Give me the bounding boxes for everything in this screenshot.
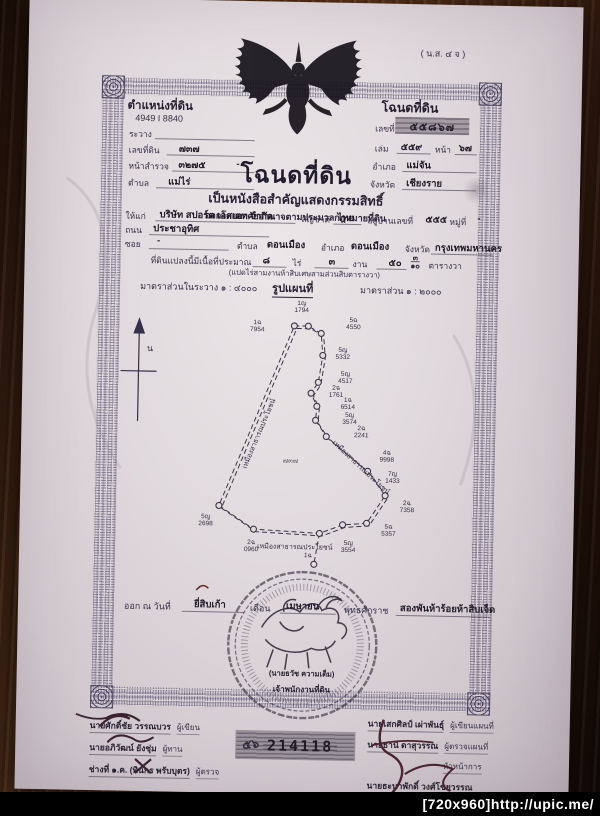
signatory-name bbox=[367, 767, 437, 768]
stamp-prefix: ๕๖ bbox=[242, 734, 260, 754]
survey-point-label: 5ญ3554 bbox=[341, 540, 356, 554]
garuda-emblem-icon bbox=[217, 28, 379, 137]
survey-point-label: 5ฉ5357 bbox=[381, 524, 396, 538]
owner-district-label: อำเภอ bbox=[321, 240, 345, 254]
road-label: ถนน bbox=[125, 223, 142, 237]
stamp-number: 214118 bbox=[267, 736, 334, 755]
signatory-name: นายเสกศิลป์ เผ่าพันธุ์ bbox=[368, 716, 445, 732]
photo-bottom-bar: [720x960]http://upic.me/ bbox=[0, 792, 600, 816]
signatory-role: หัวหน้าการ bbox=[443, 760, 482, 775]
seal-officer-name: (นายธวัช ความเต็ม) bbox=[269, 667, 335, 678]
photo-of-land-deed: { "watermark": "[720x960]http://upic.me/… bbox=[0, 0, 600, 816]
map-labels-layer: 1ญ17941ฉ79545ฉ45505ญ53325ญ45172ฉ17611ฉ65… bbox=[75, 292, 504, 584]
issue-prefix: ออก ณ วันที่ bbox=[124, 599, 171, 614]
frame-corner-ornament bbox=[90, 685, 113, 708]
survey-point-label: 1ญ1794 bbox=[294, 300, 309, 314]
owner-district-value: ดอนเมือง bbox=[351, 239, 390, 255]
watermark-text: [720x960]http://upic.me/ bbox=[423, 796, 595, 812]
serial-stamp: ๕๖ 214118 bbox=[236, 731, 354, 760]
signature-row: นายธานี ดาสุวรรณผู้ตรวจแผนที่ bbox=[367, 737, 493, 754]
survey-map: น 1ญ17941ฉ79545ฉ45505ญ53325ญ45172ฉ17611ฉ… bbox=[75, 292, 504, 584]
survey-point-label: 2ฉ2241 bbox=[354, 425, 369, 439]
survey-point-label: 1ฉ7954 bbox=[250, 319, 265, 333]
nationality-label: สัญชาติ bbox=[301, 212, 330, 227]
signatory-role: ผู้ทาน bbox=[162, 742, 182, 756]
signatory-role: ผู้ตรวจแผนที่ bbox=[444, 740, 488, 755]
owner-subdistrict-value: ดอนเมือง bbox=[267, 237, 306, 253]
boundary-name-label: เหมืองสาธารณประโยชน์ bbox=[257, 541, 332, 553]
moo-label: หมู่ที่ bbox=[449, 215, 466, 229]
boundary-name-label: เหมืองสาธารณประโยชน์ bbox=[240, 397, 280, 471]
grantee-label: ให้แก่ bbox=[125, 209, 146, 223]
survey-point-label: 1ฉ6514 bbox=[341, 397, 356, 411]
survey-point-label: 7ญ1433 bbox=[385, 471, 400, 485]
area-wa-fraction: ๓๑๐ bbox=[410, 254, 420, 269]
survey-point-label: 5ญ5332 bbox=[335, 347, 350, 361]
signature-row: นายอภิวัฒน์ ยังชุ่มผู้ทาน bbox=[89, 740, 220, 758]
official-seal: (นายธวัช ความเต็ม) เจ้าพนักงานที่ดิน bbox=[222, 565, 383, 728]
signatory-name: นายอภิวัฒน์ ยังชุ่ม bbox=[89, 740, 157, 756]
signatory-name: นายธานี ดาสุวรรณ bbox=[367, 737, 438, 753]
survey-point-label: 5ฉ4550 bbox=[346, 317, 361, 331]
survey-point-label: 5ญ2698 bbox=[198, 513, 213, 527]
signature-row: ช่างที่ ๑.ค. (ทินกร พรับบุตร)ผู้ตรวจ bbox=[89, 762, 220, 780]
house-number-label: อยู่บ้านเลขที่ bbox=[367, 213, 413, 228]
frame-corner-ornament bbox=[102, 75, 125, 98]
house-number-value: ๕๕๕ bbox=[425, 212, 447, 227]
deed-number-value: ๕๕๘๖๗ bbox=[409, 117, 455, 136]
page-label: หน้า bbox=[435, 143, 451, 157]
soi-value: - bbox=[157, 235, 160, 246]
deed-paper: ( น.ส. ๔ จ ) ตำแหน่งที่ดิน 4949 I 8840 ร… bbox=[14, 0, 583, 799]
form-code: ( น.ส. ๔ จ ) bbox=[421, 46, 466, 61]
seal-horse-figure bbox=[261, 595, 347, 671]
seal-officer-title: เจ้าพนักงานที่ดิน bbox=[273, 683, 331, 695]
ravang-label: ระวาง bbox=[129, 127, 152, 141]
parcel-number-on-map: ๗๓๗ bbox=[283, 456, 299, 467]
signature-block-left: นายศักดิ์ชัย วรรณบวรผู้เขียนนายอภิวัฒน์ … bbox=[89, 718, 220, 779]
signatory-name: นายศักดิ์ชัย วรรณบวร bbox=[90, 718, 172, 735]
deed-number-box: ๕๕๘๖๗ bbox=[395, 117, 469, 135]
signatory-name: ช่างที่ ๑.ค. (ทินกร พรับบุตร) bbox=[89, 762, 190, 779]
frame-corner-ornament bbox=[467, 692, 490, 715]
signatory-role: ผู้เขียน bbox=[177, 721, 200, 735]
survey-point-label: 2ฉ7358 bbox=[400, 500, 415, 514]
deed-number-label: เลขที่ bbox=[375, 121, 395, 135]
signatory-role: ผู้เขียนแผนที่ bbox=[450, 719, 494, 734]
survey-point-label: 4ฉ9998 bbox=[380, 450, 395, 464]
frame-corner-ornament bbox=[479, 82, 502, 105]
signature-row: หัวหน้าการ bbox=[367, 758, 493, 774]
signature-row: นายเสกศิลป์ เผ่าพันธุ์ผู้เขียนแผนที่ bbox=[368, 716, 494, 733]
book-label: เล่ม bbox=[375, 141, 389, 155]
scale-right: มาตราส่วน ๑ : ๒๐๐๐ bbox=[360, 283, 442, 299]
signature-row: นายศักดิ์ชัย วรรณบวรผู้เขียน bbox=[90, 718, 221, 736]
signatory-role: ผู้ตรวจ bbox=[196, 765, 220, 779]
owner-subdistrict-label: ตำบล bbox=[237, 239, 258, 253]
moo-value: - bbox=[477, 213, 480, 224]
map-sheet-number: 4949 I 8840 bbox=[135, 113, 183, 124]
soi-label: ซอย bbox=[125, 237, 141, 251]
boundary-name-label: เหมืองสาธารณประโยชน์ bbox=[329, 438, 391, 497]
deed-title-small: โฉนดที่ดิน bbox=[381, 98, 438, 119]
survey-page-label: หน้าสำรวจ bbox=[128, 159, 169, 174]
survey-point-label: 5ญ4517 bbox=[338, 371, 353, 385]
survey-point-label: 5ญ3574 bbox=[342, 412, 357, 426]
parcel-number-label: เลขที่ดิน bbox=[129, 143, 160, 158]
signature-block-right: นายเสกศิลป์ เผ่าพันธุ์ผู้เขียนแผนที่นายธ… bbox=[366, 716, 494, 795]
